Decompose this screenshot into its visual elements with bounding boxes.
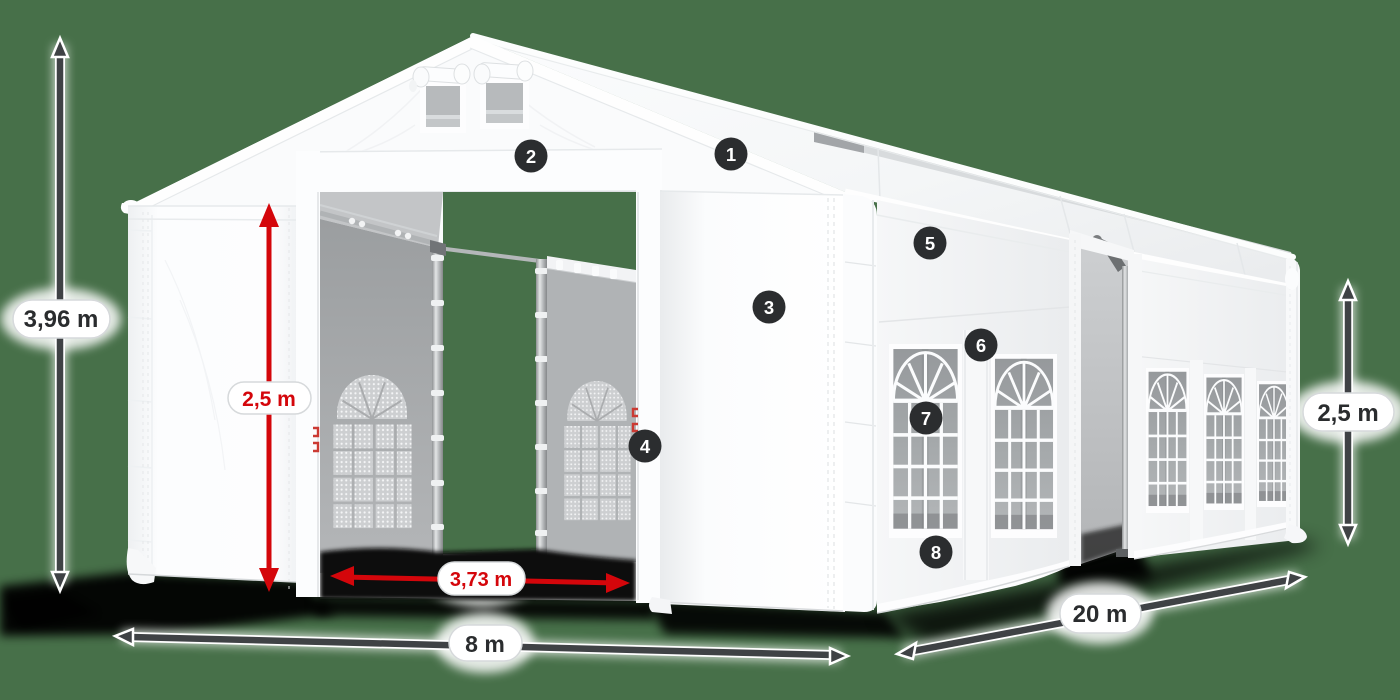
svg-text:3: 3: [764, 297, 774, 318]
svg-text:2: 2: [526, 146, 536, 167]
svg-text:7: 7: [921, 408, 931, 429]
svg-text:5: 5: [925, 233, 935, 254]
svg-text:2,5 m: 2,5 m: [1317, 400, 1378, 427]
svg-text:1: 1: [726, 144, 736, 165]
svg-text:4: 4: [640, 436, 651, 457]
svg-text:8 m: 8 m: [465, 631, 505, 657]
svg-text:2,5 m: 2,5 m: [242, 388, 296, 411]
svg-text:3,96 m: 3,96 m: [24, 306, 99, 333]
svg-text:6: 6: [976, 335, 986, 356]
svg-text:3,73 m: 3,73 m: [450, 569, 512, 591]
svg-text:8: 8: [931, 542, 941, 563]
svg-text:20 m: 20 m: [1073, 601, 1128, 628]
